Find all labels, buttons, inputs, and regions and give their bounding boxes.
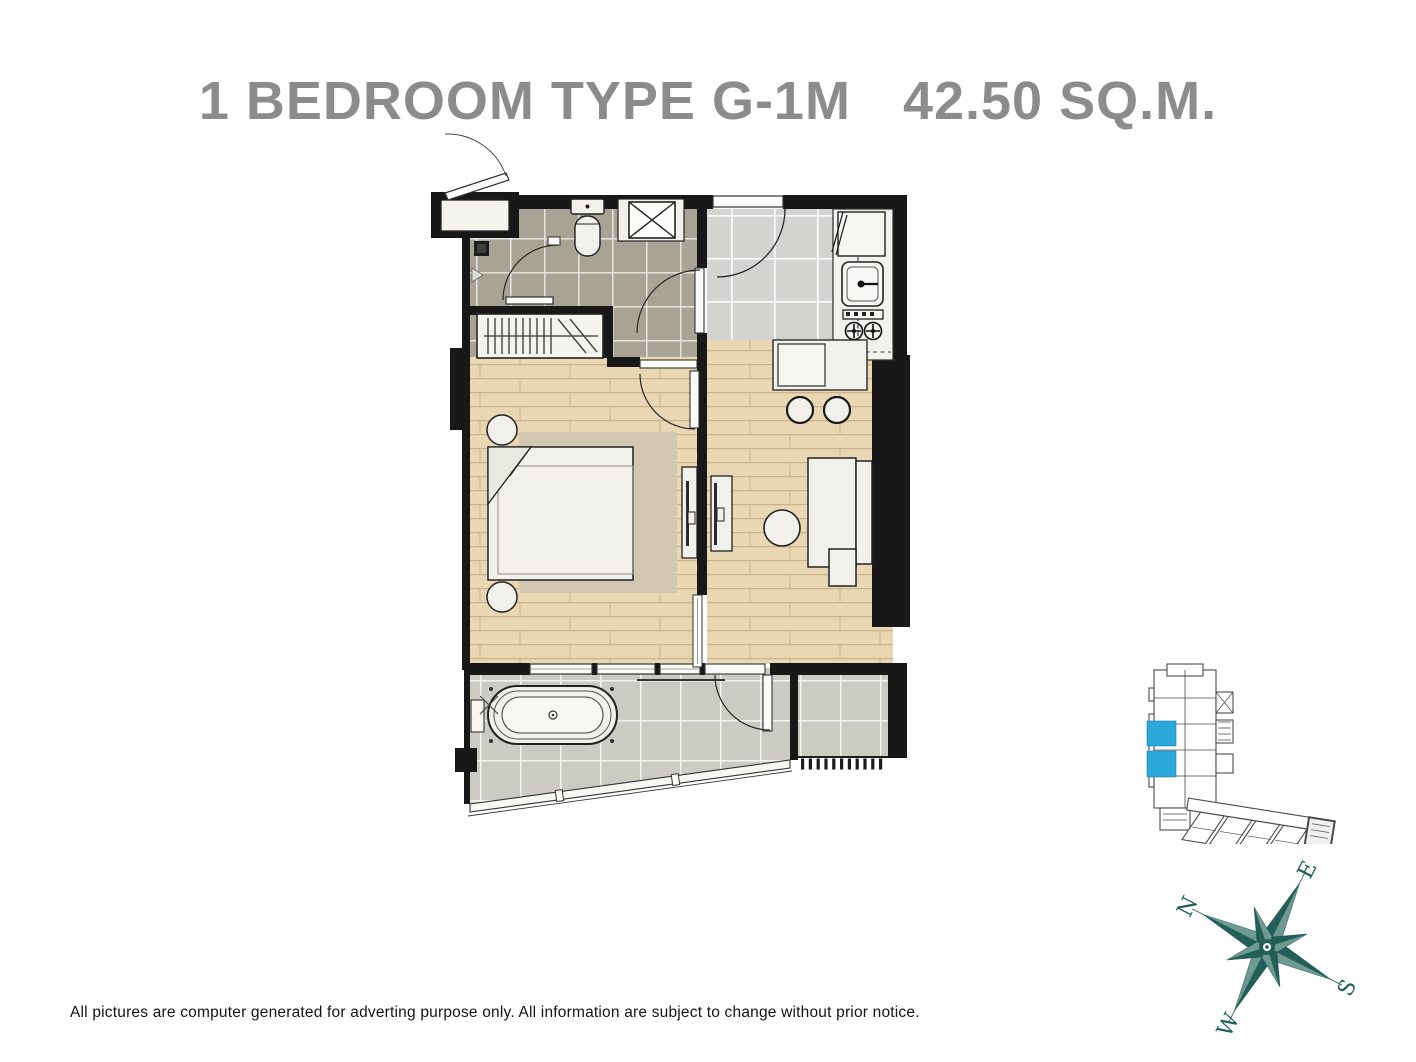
louvre-grate-icon [798,757,888,764]
stool [787,397,813,423]
compass-label-n: N [1175,893,1204,922]
floor-plan [425,128,925,843]
disclaimer-text: All pictures are computer generated for … [70,1004,920,1022]
entrance-door [445,134,509,200]
compass-label-w: W [1213,1009,1246,1041]
column [450,348,470,430]
key-plan-highlighted-unit-2 [1147,751,1176,777]
towel-rail [506,297,553,304]
page-title: 1 BEDROOM TYPE G-1M42.50 SQ.M. [0,70,1416,132]
entrance-cabinet [441,200,509,231]
bed [488,447,633,580]
stool [824,397,850,423]
glass-partition [693,595,702,667]
coffee-table [764,510,800,546]
wardrobe [477,314,603,358]
fridge [832,212,885,256]
unit-area-label: 42.50 SQ.M. [903,71,1217,131]
ac-ledge-floor [798,674,888,757]
sink [842,262,883,306]
page: 1 BEDROOM TYPE G-1M42.50 SQ.M. [0,0,1416,1062]
key-plan-highlighted-unit-1 [1147,721,1176,746]
nightstand [487,582,517,612]
ottoman [829,549,856,586]
tv-console-living [711,476,732,551]
key-plan-building [1149,664,1335,844]
toilet [571,199,604,256]
shower [618,199,684,241]
compass-label-e: E [1293,857,1323,883]
nightstand [487,415,517,445]
compass-rose: N E S W [1175,845,1359,1049]
key-plan [1127,658,1339,844]
dining-table [773,340,867,390]
bedroom-windows [530,664,700,674]
compass-label-s: S [1333,976,1359,1001]
shaft-box-inner [477,244,486,253]
tv-console-bedroom [682,467,697,558]
unit-type-label: 1 BEDROOM TYPE G-1M [199,71,851,131]
column [455,748,477,772]
column [872,355,910,627]
